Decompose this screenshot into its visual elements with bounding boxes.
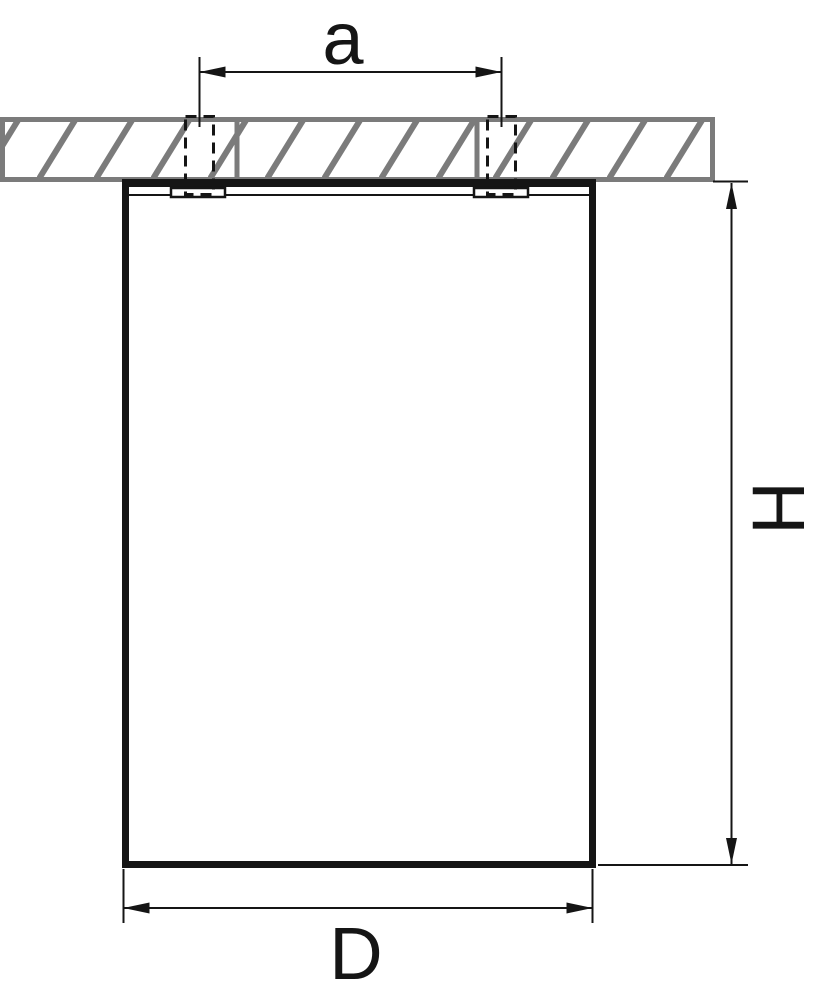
dimension-a-label: a (322, 0, 364, 80)
dimension-d: D (124, 869, 593, 995)
mounting-tab-left (171, 188, 225, 197)
fixture-body (126, 184, 593, 865)
fixture (122, 179, 596, 865)
dimension-h-label: H (737, 481, 816, 534)
ceiling-hatched-band (3, 120, 713, 180)
ceiling-section (3, 118, 713, 181)
dimension-a: a (200, 0, 502, 127)
mounting-tab-right (474, 188, 528, 197)
drawing-page: a H D (0, 0, 816, 1000)
dimension-h: H (598, 182, 816, 866)
fixture-top-plate (122, 179, 596, 187)
dimension-d-label: D (329, 912, 382, 995)
technical-drawing: a H D (0, 0, 816, 1000)
